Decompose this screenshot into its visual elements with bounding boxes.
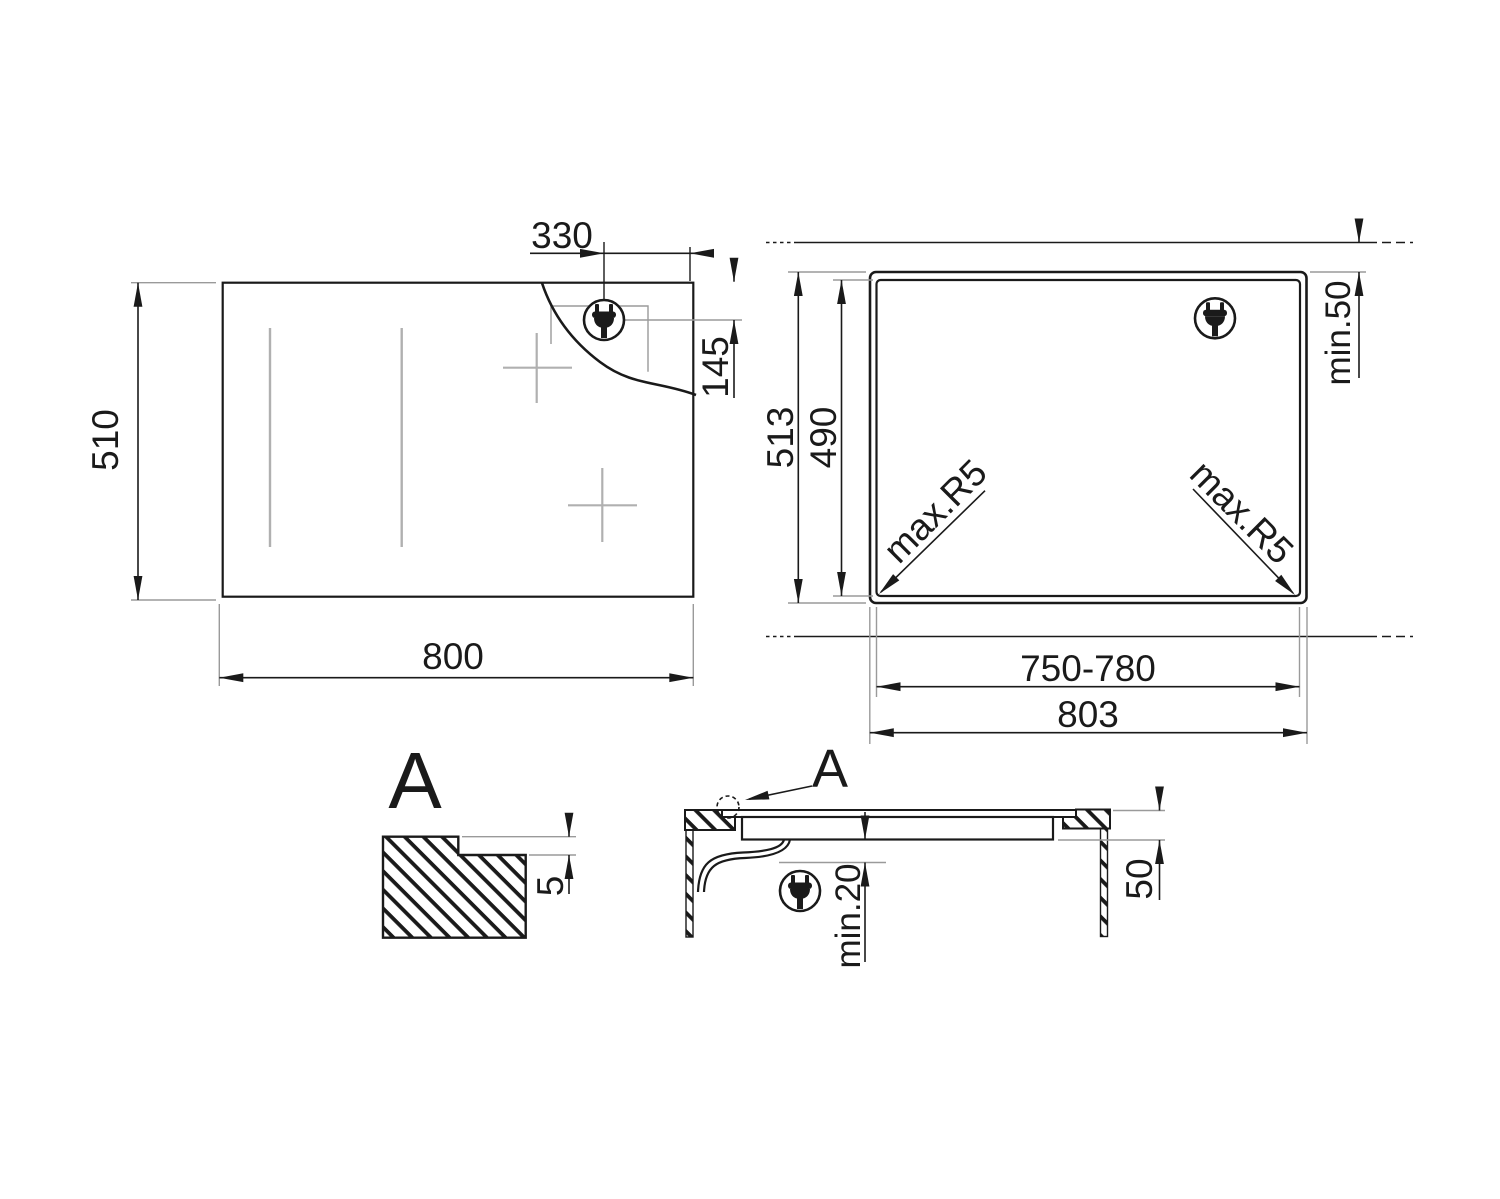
dim-label-maxR5-right: max.R5 [1182,453,1301,572]
hob-glass-outline [870,272,1307,603]
dim-label-145: 145 [695,336,736,398]
dim-label-750-780: 750-780 [1020,648,1156,689]
dim-label-maxR5-left: max.R5 [876,452,995,571]
cutout-view: 513 490 min.50 max.R5 [760,219,1413,745]
dim-label-803: 803 [1057,694,1119,735]
dim-corner-radius-right: max.R5 [1182,453,1301,595]
hob-body-section [742,817,1053,840]
dim-corner-radius-left: max.R5 [876,452,995,594]
dim-label-min50: min.50 [1319,280,1358,385]
power-cable [698,840,784,893]
power-plug-icon [780,871,820,911]
dim-hob-width: 800 [219,604,693,686]
dim-recess-depth: 50 [1058,787,1165,901]
power-plug-icon [584,300,624,340]
hob-top-view: 330 145 510 800 [85,215,742,686]
dim-cutout-width: 750-780 [877,607,1300,697]
dim-cutout-height: 490 [803,280,873,596]
dim-label-800: 800 [422,636,484,677]
dim-label-513: 513 [760,407,801,469]
zone-center-cross [503,333,572,403]
dim-label-5: 5 [530,876,571,897]
installation-drawing: 330 145 510 800 [0,0,1500,1199]
zone-center-cross [568,468,637,542]
break-curve [542,283,696,395]
detail-callout-arrow [745,791,769,800]
dim-plug-offset-x: 330 [530,215,714,258]
dim-hob-height: 510 [85,283,216,600]
detail-label: A [388,736,442,825]
dim-plug-offset-y: 145 [695,258,738,398]
dim-label-490: 490 [803,407,844,469]
worktop-rebate-section [383,837,526,938]
power-plug-icon [1195,298,1235,338]
dim-label-50: 50 [1119,858,1160,899]
cutout-outline [877,280,1301,596]
section-view: A min.20 50 [685,739,1165,969]
section-label: A [812,739,848,799]
dim-label-min20: min.20 [829,863,868,968]
cabinet-panel-right [1101,829,1108,937]
detail-a-view: A 5 [383,736,576,938]
cabinet-panel-left [686,830,693,937]
dim-rear-clearance: min.50 [1310,219,1366,386]
dim-label-510: 510 [85,409,126,471]
dim-label-330: 330 [531,215,593,256]
